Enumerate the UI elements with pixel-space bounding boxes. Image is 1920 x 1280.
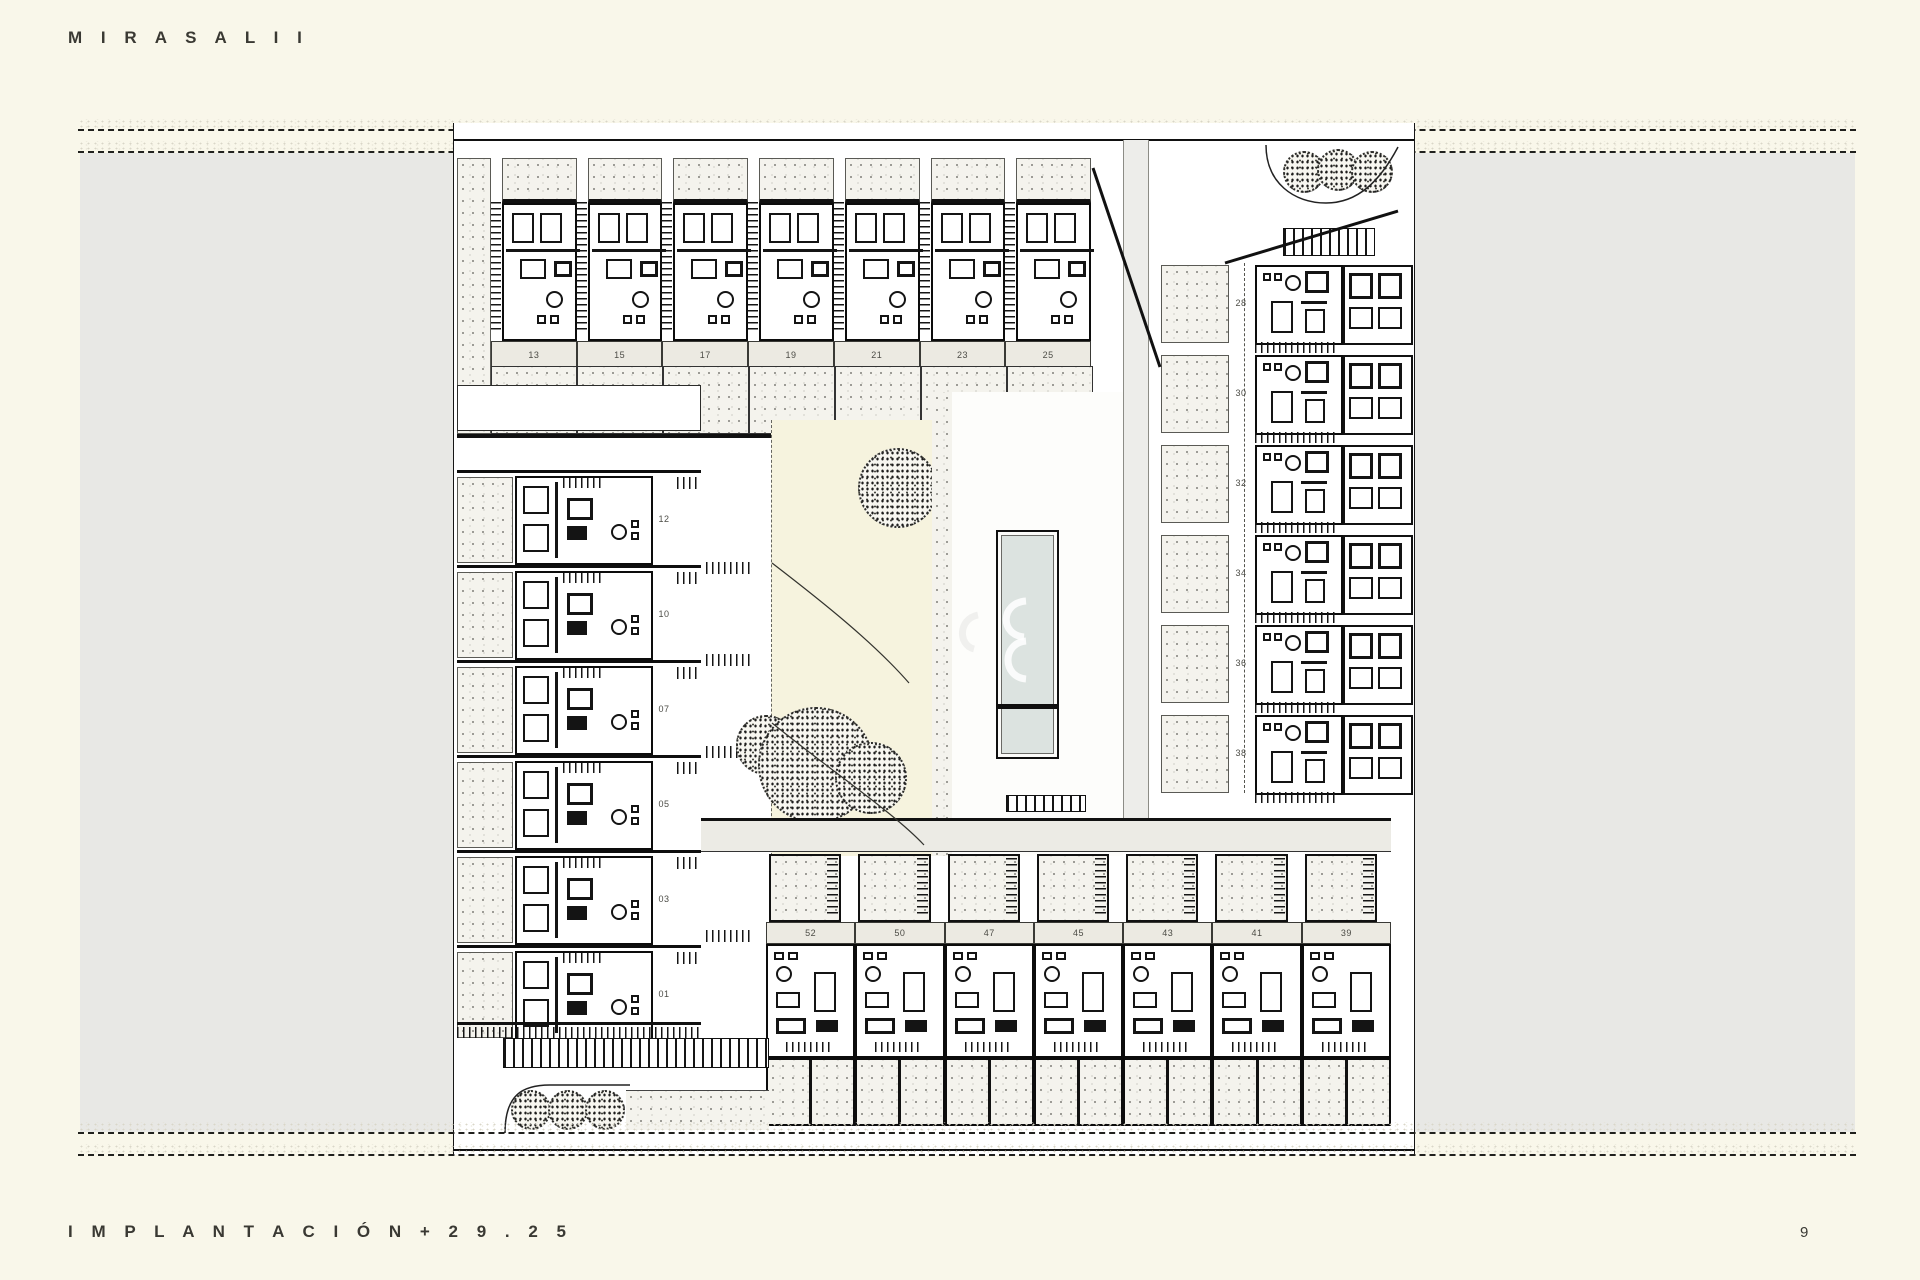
garage-stall-glyph	[1349, 273, 1373, 299]
furniture-glyph	[955, 992, 979, 1008]
stair-glyph	[563, 953, 603, 963]
left-column-units: 12 10	[457, 470, 701, 1040]
unit-terrace	[1161, 535, 1229, 613]
stair-strip	[1184, 858, 1195, 918]
patio-cell	[1125, 1060, 1166, 1124]
furniture-glyph	[1305, 541, 1329, 563]
furniture-glyph	[1352, 1020, 1374, 1032]
furniture-glyph	[1133, 992, 1157, 1008]
unit-number: 50	[855, 922, 944, 944]
unit-number: 41	[1212, 922, 1301, 944]
bed-glyph	[1271, 301, 1293, 333]
furniture-glyph	[1263, 543, 1271, 551]
furniture-glyph	[1173, 1020, 1195, 1032]
wall-glyph	[555, 862, 558, 938]
stair-strip	[1005, 202, 1015, 334]
garage-stall-glyph	[1349, 487, 1373, 509]
furniture-glyph	[725, 261, 743, 277]
furniture-glyph	[1305, 309, 1325, 333]
access-court	[457, 385, 701, 431]
furniture-glyph	[1051, 315, 1060, 324]
garage-stall-glyph	[1378, 757, 1402, 779]
furniture-glyph	[863, 952, 873, 960]
unit-terrace	[759, 158, 834, 203]
furniture-glyph	[777, 259, 803, 279]
table-glyph	[611, 524, 627, 540]
furniture-glyph	[523, 866, 549, 894]
garage-stall-glyph	[1349, 397, 1373, 419]
garage-stall-glyph	[1378, 543, 1402, 569]
furniture-glyph	[523, 961, 549, 989]
furniture-glyph	[523, 676, 549, 704]
table-glyph	[1285, 455, 1301, 471]
unit-garage	[1343, 535, 1413, 615]
unit-lower-block	[945, 1058, 1034, 1126]
furniture-glyph	[883, 213, 905, 243]
garage-stall-glyph	[1378, 307, 1402, 329]
furniture-glyph	[623, 315, 632, 324]
furniture-glyph	[631, 532, 639, 540]
bed-glyph	[1082, 972, 1104, 1012]
stair-strip	[706, 654, 750, 666]
wall-glyph	[1301, 481, 1327, 484]
garage-stall-glyph	[1378, 453, 1402, 479]
unit-lower-block	[766, 1058, 855, 1126]
furniture-glyph	[788, 952, 798, 960]
garage-stall-glyph	[1349, 363, 1373, 389]
unit-floorplan	[515, 856, 653, 945]
table-glyph	[776, 966, 792, 982]
unit-terrace	[502, 158, 577, 203]
furniture-glyph	[631, 520, 639, 528]
unit-floorplan	[1255, 715, 1343, 795]
table-glyph	[632, 291, 649, 308]
wall-glyph	[935, 249, 1009, 252]
table-glyph	[1060, 291, 1077, 308]
texture-strip	[78, 1144, 1856, 1153]
unit-number: 10	[653, 568, 675, 660]
furniture-glyph	[905, 1020, 927, 1032]
stair-strip	[677, 572, 701, 584]
unit-floorplan	[515, 571, 653, 660]
furniture-glyph	[631, 722, 639, 730]
unit-module: 10	[457, 565, 701, 660]
furniture-glyph	[880, 315, 889, 324]
furniture-glyph	[691, 259, 717, 279]
unit-terrace	[457, 572, 513, 658]
table-glyph	[1312, 966, 1328, 982]
stair-strip	[706, 930, 750, 942]
stair-glyph	[1143, 1042, 1189, 1052]
unit-module: 32	[1161, 445, 1411, 521]
furniture-glyph	[1133, 1018, 1163, 1034]
furniture-glyph	[708, 315, 717, 324]
wall-glyph	[1301, 661, 1327, 664]
unit-garage	[1343, 265, 1413, 345]
unit-garage	[1343, 355, 1413, 435]
drawing-title-label: I M P L A N T A C I Ó N + 2 9 . 2 5	[68, 1222, 573, 1242]
furniture-glyph	[1064, 315, 1073, 324]
wall-glyph	[555, 767, 558, 843]
unit-number: 23	[920, 341, 1006, 369]
furniture-glyph	[953, 952, 963, 960]
circulation-road	[1123, 140, 1149, 818]
unit-number: 13	[491, 341, 577, 369]
wall-glyph	[849, 249, 923, 252]
patio-cell	[1166, 1060, 1210, 1124]
stair-strip	[1255, 792, 1339, 803]
furniture-glyph	[567, 716, 587, 730]
stair-glyph	[563, 573, 603, 583]
table-glyph	[865, 966, 881, 982]
unit-terrace	[1161, 445, 1229, 523]
property-dashed-line	[1244, 263, 1245, 793]
furniture-glyph	[1305, 669, 1325, 693]
garage-stall-glyph	[1349, 757, 1373, 779]
unit-lower-block	[1034, 1058, 1123, 1126]
furniture-glyph	[1054, 213, 1076, 243]
unit-terrace	[457, 857, 513, 943]
furniture-glyph	[816, 1020, 838, 1032]
furniture-glyph	[1305, 721, 1329, 743]
unit-number: 19	[748, 341, 834, 369]
unit-floorplan	[766, 944, 855, 1058]
patio-cell	[898, 1060, 942, 1124]
furniture-glyph	[567, 878, 593, 900]
furniture-glyph	[983, 261, 1001, 277]
unit-terrace	[1161, 265, 1229, 343]
unit-terrace	[457, 952, 513, 1038]
patio-cell	[988, 1060, 1032, 1124]
furniture-glyph	[567, 1001, 587, 1015]
unit-number: 03	[653, 853, 675, 945]
bed-glyph	[1271, 751, 1293, 783]
unit-terrace	[1215, 854, 1287, 922]
unit-module: 17	[662, 158, 748, 369]
furniture-glyph	[1044, 1018, 1074, 1034]
unit-floorplan	[515, 761, 653, 850]
furniture-glyph	[1305, 631, 1329, 653]
unit-floorplan	[502, 203, 577, 341]
unit-floorplan	[845, 203, 920, 341]
furniture-glyph	[631, 912, 639, 920]
unit-floorplan	[1016, 203, 1091, 341]
unit-terrace	[457, 477, 513, 563]
unit-terrace	[948, 854, 1020, 922]
furniture-glyph	[1274, 633, 1282, 641]
unit-module: 25	[1005, 158, 1091, 369]
patio-cell	[1077, 1060, 1121, 1124]
plan-top-line	[454, 139, 1414, 141]
garage-stall-glyph	[1349, 633, 1373, 659]
table-glyph	[611, 619, 627, 635]
furniture-glyph	[877, 952, 887, 960]
furniture-glyph	[606, 259, 632, 279]
tree-icon	[835, 742, 907, 814]
furniture-glyph	[967, 952, 977, 960]
furniture-glyph	[1068, 261, 1086, 277]
wall-glyph	[555, 672, 558, 748]
unit-number: 28	[1227, 265, 1255, 341]
bed-glyph	[993, 972, 1015, 1012]
stair-strip	[662, 202, 672, 334]
tree-icon	[858, 448, 938, 528]
furniture-glyph	[1263, 723, 1271, 731]
unit-terrace	[858, 854, 930, 922]
unit-terrace	[673, 158, 748, 203]
unit-terrace	[1161, 625, 1229, 703]
patio-cell	[1304, 1060, 1345, 1124]
furniture-glyph	[523, 904, 549, 932]
table-glyph	[717, 291, 734, 308]
bottom-row-units: 52 50	[766, 854, 1391, 1126]
furniture-glyph	[1274, 723, 1282, 731]
furniture-glyph	[1305, 451, 1329, 473]
unit-module: 52	[766, 854, 855, 1126]
wall-glyph	[555, 577, 558, 653]
unit-number: 32	[1227, 445, 1255, 521]
unit-module: 12	[457, 470, 701, 565]
unit-module: 38	[1161, 715, 1411, 791]
stair-strip	[457, 1027, 701, 1038]
furniture-glyph	[631, 817, 639, 825]
furniture-glyph	[523, 619, 549, 647]
stair-strip	[677, 667, 701, 679]
unit-module: 23	[920, 158, 1006, 369]
bed-glyph	[814, 972, 836, 1012]
unit-floorplan	[515, 666, 653, 755]
furniture-glyph	[1044, 992, 1068, 1008]
furniture-glyph	[631, 900, 639, 908]
furniture-glyph	[855, 213, 877, 243]
margin-panel-right	[1413, 153, 1855, 1132]
table-glyph	[611, 999, 627, 1015]
unit-module: 30	[1161, 355, 1411, 431]
margin-panel-left	[80, 153, 453, 1132]
garage-stall-glyph	[1349, 667, 1373, 689]
furniture-glyph	[1263, 633, 1271, 641]
garage-stall-glyph	[1349, 577, 1373, 599]
unit-number: 05	[653, 758, 675, 850]
unit-module: 03	[457, 850, 701, 945]
furniture-glyph	[567, 621, 587, 635]
unit-module: 19	[748, 158, 834, 369]
table-glyph	[1285, 725, 1301, 741]
furniture-glyph	[1220, 952, 1230, 960]
bed-glyph	[1271, 571, 1293, 603]
furniture-glyph	[979, 315, 988, 324]
garage-stall-glyph	[1378, 397, 1402, 419]
boundary-dashed-line-bottom-2	[78, 1154, 1856, 1156]
furniture-glyph	[626, 213, 648, 243]
unit-number: 07	[653, 663, 675, 755]
bed-glyph	[1171, 972, 1193, 1012]
unit-floorplan	[515, 476, 653, 565]
furniture-glyph	[523, 714, 549, 742]
unit-terrace	[1126, 854, 1198, 922]
stair-glyph	[563, 668, 603, 678]
bed-glyph	[1350, 972, 1372, 1012]
furniture-glyph	[567, 526, 587, 540]
unit-floorplan	[1212, 944, 1301, 1058]
unit-module: 13	[491, 158, 577, 369]
unit-terrace	[1037, 854, 1109, 922]
garage-stall-glyph	[1349, 307, 1373, 329]
unit-floorplan	[1255, 625, 1343, 705]
stair-strip	[1255, 342, 1339, 353]
boundary-dashed-line-bottom-1	[78, 1132, 1856, 1134]
garage-stall-glyph	[1378, 723, 1402, 749]
unit-module: 05	[457, 755, 701, 850]
furniture-glyph	[567, 688, 593, 710]
page-number: 9	[1800, 1224, 1809, 1241]
patio-cell	[857, 1060, 898, 1124]
wall-glyph	[1301, 301, 1327, 304]
unit-terrace	[588, 158, 663, 203]
unit-module: 43	[1123, 854, 1212, 1126]
furniture-glyph	[554, 261, 572, 277]
furniture-glyph	[1056, 952, 1066, 960]
bed-glyph	[1271, 481, 1293, 513]
table-glyph	[1285, 365, 1301, 381]
unit-number: 45	[1034, 922, 1123, 944]
right-column-units: 28 30	[1161, 265, 1411, 805]
stair-strip	[920, 202, 930, 334]
table-glyph	[1285, 635, 1301, 651]
unit-number: 47	[945, 922, 1034, 944]
unit-module: 28	[1161, 265, 1411, 341]
furniture-glyph	[640, 261, 658, 277]
wall-glyph	[506, 249, 580, 252]
stair-glyph	[1232, 1042, 1278, 1052]
unit-floorplan	[1255, 535, 1343, 615]
stair-glyph	[1054, 1042, 1100, 1052]
furniture-glyph	[1274, 363, 1282, 371]
unit-terrace	[1161, 715, 1229, 793]
table-glyph	[803, 291, 820, 308]
garage-stall-glyph	[1378, 667, 1402, 689]
unit-terrace	[1161, 355, 1229, 433]
unit-module: 15	[577, 158, 663, 369]
garage-stall-glyph	[1349, 453, 1373, 479]
wall-glyph	[555, 482, 558, 558]
unit-floorplan	[1255, 265, 1343, 345]
structural-line	[457, 1022, 701, 1025]
wall-glyph	[677, 249, 751, 252]
furniture-glyph	[1084, 1020, 1106, 1032]
site-plan-drawing: 13 15	[453, 123, 1415, 1155]
table-glyph	[1044, 966, 1060, 982]
furniture-glyph	[995, 1020, 1017, 1032]
furniture-glyph	[636, 315, 645, 324]
furniture-glyph	[794, 315, 803, 324]
furniture-glyph	[523, 524, 549, 552]
furniture-glyph	[949, 259, 975, 279]
furniture-glyph	[811, 261, 829, 277]
unit-floorplan	[1123, 944, 1212, 1058]
furniture-glyph	[776, 992, 800, 1008]
furniture-glyph	[520, 259, 546, 279]
furniture-glyph	[567, 973, 593, 995]
stair-strip	[834, 202, 844, 334]
unit-number: 30	[1227, 355, 1255, 431]
document-page: M I R A S A L I I	[0, 0, 1920, 1280]
tree-icon	[1351, 151, 1393, 193]
furniture-glyph	[1234, 952, 1244, 960]
furniture-glyph	[1222, 992, 1246, 1008]
furniture-glyph	[1274, 273, 1282, 281]
table-glyph	[975, 291, 992, 308]
table-glyph	[1285, 275, 1301, 291]
table-glyph	[611, 809, 627, 825]
furniture-glyph	[1131, 952, 1141, 960]
garage-stall-glyph	[1378, 273, 1402, 299]
patio-cell	[1256, 1060, 1300, 1124]
furniture-glyph	[1305, 579, 1325, 603]
furniture-glyph	[769, 213, 791, 243]
furniture-glyph	[955, 1018, 985, 1034]
furniture-glyph	[941, 213, 963, 243]
furniture-glyph	[865, 992, 889, 1008]
deck-edge-strip	[932, 392, 952, 856]
garage-stall-glyph	[1378, 363, 1402, 389]
stair-strip	[677, 952, 701, 964]
furniture-glyph	[523, 771, 549, 799]
patio-cell	[809, 1060, 853, 1124]
stair-strip	[706, 562, 750, 574]
unit-floorplan	[1302, 944, 1391, 1058]
furniture-glyph	[1305, 361, 1329, 383]
furniture-glyph	[969, 213, 991, 243]
unit-number: 34	[1227, 535, 1255, 611]
pool-steps-pergola	[1006, 795, 1086, 812]
furniture-glyph	[631, 805, 639, 813]
furniture-glyph	[537, 315, 546, 324]
furniture-glyph	[1222, 1018, 1252, 1034]
furniture-glyph	[567, 811, 587, 825]
furniture-glyph	[1305, 759, 1325, 783]
bed-glyph	[903, 972, 925, 1012]
furniture-glyph	[567, 906, 587, 920]
furniture-glyph	[567, 498, 593, 520]
stair-strip	[1006, 858, 1017, 918]
furniture-glyph	[1026, 213, 1048, 243]
furniture-glyph	[776, 1018, 806, 1034]
garage-stall-glyph	[1349, 723, 1373, 749]
stair-glyph	[875, 1042, 921, 1052]
furniture-glyph	[897, 261, 915, 277]
stair-strip	[1363, 858, 1374, 918]
furniture-glyph	[683, 213, 705, 243]
stair-strip	[1255, 432, 1339, 443]
patio-cell	[1345, 1060, 1389, 1124]
unit-number: 38	[1227, 715, 1255, 791]
furniture-glyph	[711, 213, 733, 243]
unit-module: 39	[1302, 854, 1391, 1126]
page-title: M I R A S A L I I	[68, 28, 309, 48]
pergola-strip	[1283, 228, 1375, 256]
stair-strip	[1255, 612, 1339, 623]
unit-lower-block	[855, 1058, 944, 1126]
furniture-glyph	[567, 783, 593, 805]
table-glyph	[1285, 545, 1301, 561]
unit-floorplan	[855, 944, 944, 1058]
stair-glyph	[563, 858, 603, 868]
table-glyph	[1133, 966, 1149, 982]
furniture-glyph	[631, 627, 639, 635]
wall-glyph	[1301, 751, 1327, 754]
pergola-strip	[503, 1038, 769, 1068]
